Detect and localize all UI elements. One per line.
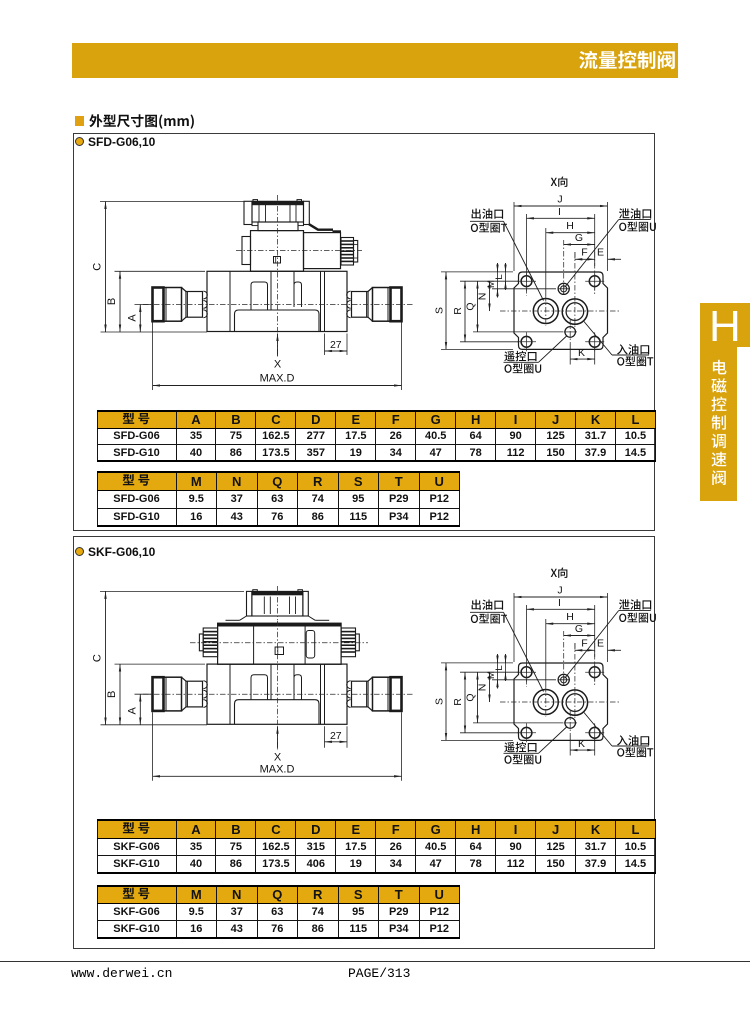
svg-text:Q: Q (465, 302, 477, 310)
svg-text:B: B (106, 298, 118, 305)
svg-text:F: F (581, 638, 587, 650)
svg-text:MAX.D: MAX.D (260, 763, 295, 775)
svg-text:M: M (486, 280, 497, 288)
svg-text:MAX.D: MAX.D (260, 373, 295, 385)
svg-text:R: R (452, 307, 464, 315)
svg-text:F: F (581, 247, 587, 259)
svg-text:C: C (92, 654, 104, 662)
svg-text:X: X (274, 751, 282, 763)
svg-text:C: C (92, 263, 104, 271)
svg-text:E: E (597, 638, 604, 650)
svg-text:R: R (452, 698, 464, 706)
svg-text:X: X (274, 359, 282, 371)
svg-text:H: H (566, 220, 574, 232)
svg-text:L: L (494, 274, 505, 279)
svg-text:J: J (557, 194, 562, 206)
svg-text:27: 27 (330, 339, 342, 351)
svg-text:K: K (578, 347, 585, 359)
svg-text:A: A (127, 706, 139, 714)
svg-text:L: L (494, 665, 505, 670)
svg-text:I: I (558, 597, 561, 609)
svg-text:N: N (477, 684, 489, 692)
svg-text:27: 27 (330, 730, 342, 742)
svg-text:A: A (127, 314, 139, 322)
svg-text:S: S (433, 698, 445, 705)
svg-text:K: K (578, 738, 585, 750)
svg-text:N: N (477, 293, 489, 301)
svg-text:S: S (433, 307, 445, 314)
svg-text:E: E (597, 247, 604, 259)
svg-text:G: G (575, 623, 583, 635)
svg-text:M: M (486, 671, 497, 679)
svg-text:J: J (557, 585, 562, 597)
svg-text:B: B (106, 691, 118, 698)
svg-text:G: G (575, 232, 583, 244)
svg-text:I: I (558, 206, 561, 218)
svg-text:Q: Q (465, 693, 477, 701)
svg-text:H: H (566, 611, 574, 623)
